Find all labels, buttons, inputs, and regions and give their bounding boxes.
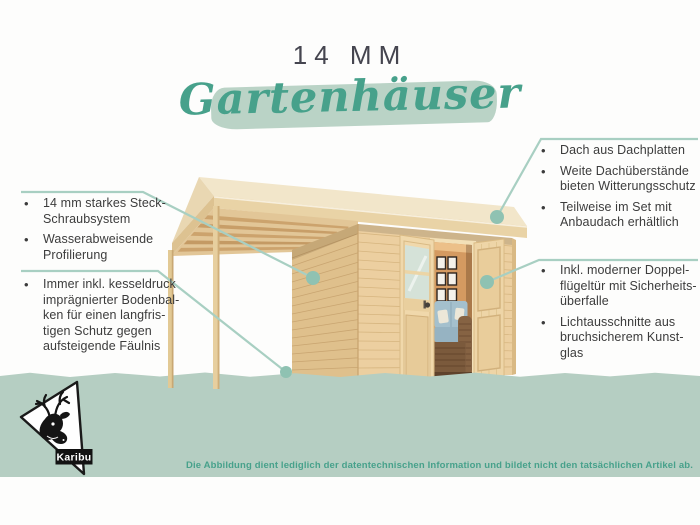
list-item: • Dach aus Dachplatten (541, 143, 699, 159)
door-right-panel (474, 239, 504, 381)
callout-dot-wall (306, 271, 320, 285)
callout-text: Dach aus Dachplatten (560, 143, 685, 159)
infographic-page: 14 MM Gartenhäuser (0, 0, 700, 525)
list-item: • Immer inkl. kesseldruck imprägnierter … (24, 277, 190, 355)
bullet-dot: • (541, 143, 560, 159)
double-door (400, 235, 504, 388)
list-item: • Wasserabweisende Profilierung (24, 232, 190, 263)
callout-text: Teilweise im Set mit Anbaudach erhältlic… (560, 200, 679, 231)
callout-dot-door (480, 275, 494, 289)
list-item: • Inkl. moderner Doppel- flügeltür mit S… (541, 263, 699, 310)
bullet-dot: • (541, 200, 560, 216)
callout-text: Wasserabweisende Profilierung (43, 232, 153, 263)
callout-text: Inkl. moderner Doppel- flügeltür mit Sic… (560, 263, 697, 310)
bullet-dot: • (24, 196, 43, 212)
callout-group-roof: • Dach aus Dachplatten • Weite Dachübers… (541, 143, 699, 231)
interior-scene (430, 240, 476, 386)
list-item: • Weite Dachüberstände bieten Witterungs… (541, 164, 699, 195)
door-left-panel (400, 235, 434, 388)
list-item: • Lichtausschnitte aus bruchsicherem Kun… (541, 315, 699, 362)
bullet-dot: • (541, 263, 560, 279)
callout-group-foundation: • Immer inkl. kesseldruck imprägnierter … (24, 277, 190, 355)
bullet-dot: • (24, 277, 43, 293)
list-item: • 14 mm starkes Steck- Schraubsystem (24, 196, 190, 227)
bullet-dot: • (24, 232, 43, 248)
list-item: • Teilweise im Set mit Anbaudach erhältl… (541, 200, 699, 231)
callout-text: Lichtausschnitte aus bruchsicherem Kunst… (560, 315, 684, 362)
bullet-dot: • (541, 315, 560, 331)
sofa (435, 301, 473, 374)
callout-text: Weite Dachüberstände bieten Witterungssc… (560, 164, 696, 195)
callout-dot-base (280, 366, 292, 378)
callout-group-construction: • 14 mm starkes Steck- Schraubsystem • W… (24, 196, 190, 263)
callout-text: Immer inkl. kesseldruck imprägnierter Bo… (43, 277, 179, 355)
door-handle (425, 302, 430, 307)
bullet-dot: • (541, 164, 560, 180)
callout-dot-roof (490, 210, 504, 224)
callout-text: 14 mm starkes Steck- Schraubsystem (43, 196, 166, 227)
disclaimer-text: Die Abbildung dient lediglich der datent… (3, 460, 693, 471)
callout-group-door: • Inkl. moderner Doppel- flügeltür mit S… (541, 263, 699, 361)
